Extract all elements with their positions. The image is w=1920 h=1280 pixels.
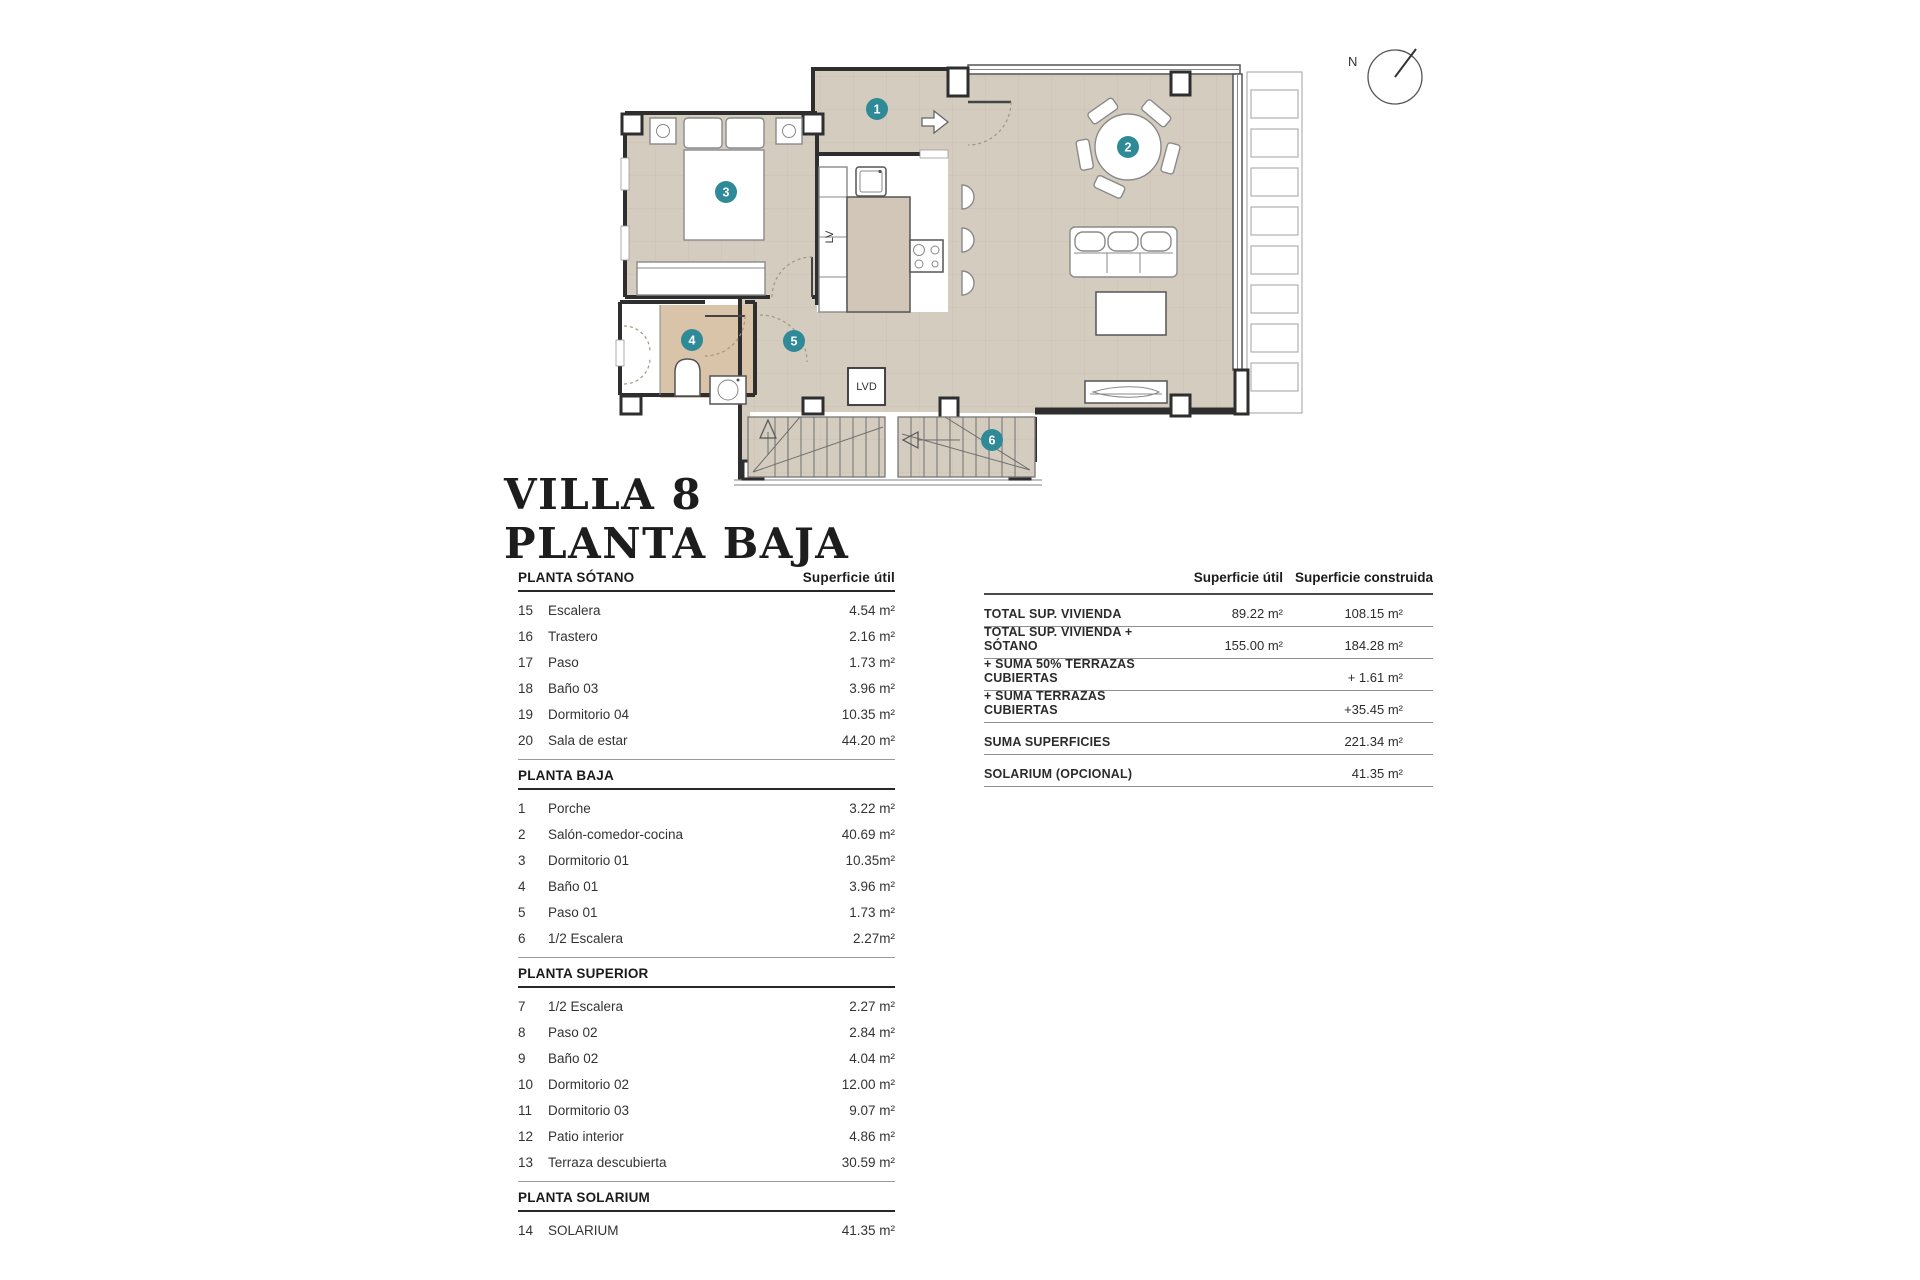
summary-row: + SUMA TERRAZAS CUBIERTAS+35.45 m² bbox=[984, 691, 1433, 723]
room-marker-number: 3 bbox=[723, 186, 730, 200]
floor-plan-area: LV LVD bbox=[490, 10, 1480, 495]
room-name: 1/2 Escalera bbox=[548, 931, 853, 946]
window bbox=[616, 340, 624, 366]
room-number: 12 bbox=[518, 1129, 548, 1144]
summary-label: TOTAL SUP. VIVIENDA + SÓTANO bbox=[984, 625, 1178, 653]
room-row: 71/2 Escalera2.27 m² bbox=[518, 993, 895, 1019]
kitchen-island bbox=[847, 197, 910, 312]
room-marker-number: 6 bbox=[989, 434, 996, 448]
room-number: 16 bbox=[518, 629, 548, 644]
room-marker-number: 5 bbox=[791, 335, 798, 349]
section-heading: PLANTA BAJA bbox=[518, 768, 614, 783]
room-area: 40.69 m² bbox=[842, 827, 895, 842]
room-marker-number: 4 bbox=[689, 334, 696, 348]
room-number: 2 bbox=[518, 827, 548, 842]
summary-label: TOTAL SUP. VIVIENDA bbox=[984, 607, 1178, 621]
room-name: Paso 01 bbox=[548, 905, 849, 920]
summary-construida-value: + 1.61 m² bbox=[1283, 670, 1433, 685]
summary-table-header: Superficie útil Superficie construida bbox=[984, 570, 1433, 595]
room-row: 2Salón-comedor-cocina40.69 m² bbox=[518, 821, 895, 847]
room-row: 13Terraza descubierta30.59 m² bbox=[518, 1149, 895, 1175]
room-area: 2.16 m² bbox=[849, 629, 895, 644]
pillow bbox=[726, 118, 764, 148]
pergola bbox=[1247, 72, 1302, 413]
summary-col2-header: Superficie construida bbox=[1283, 570, 1433, 585]
room-area: 4.04 m² bbox=[849, 1051, 895, 1066]
summary-util-value: 155.00 m² bbox=[1178, 638, 1283, 653]
room-marker-number: 1 bbox=[874, 103, 881, 117]
room-area: 3.22 m² bbox=[849, 801, 895, 816]
room-row: 15Escalera4.54 m² bbox=[518, 597, 895, 623]
room-row: 12Patio interior4.86 m² bbox=[518, 1123, 895, 1149]
summary-row: SOLARIUM (OPCIONAL)41.35 m² bbox=[984, 755, 1433, 787]
room-number: 1 bbox=[518, 801, 548, 816]
section-header-row: PLANTA SÓTANOSuperficie útil bbox=[518, 570, 895, 592]
room-number: 13 bbox=[518, 1155, 548, 1170]
room-number: 19 bbox=[518, 707, 548, 722]
rooms-table-body: PLANTA SÓTANOSuperficie útil15Escalera4.… bbox=[518, 570, 895, 1249]
room-name: 1/2 Escalera bbox=[548, 999, 849, 1014]
plan-section: PLANTA BAJA1Porche3.22 m²2Salón-comedor-… bbox=[518, 759, 895, 957]
room-name: Dormitorio 03 bbox=[548, 1103, 849, 1118]
summary-construida-value: +35.45 m² bbox=[1283, 702, 1433, 717]
summary-util-value: 89.22 m² bbox=[1178, 606, 1283, 621]
page-title: VILLA 8 PLANTA BAJA bbox=[504, 470, 849, 568]
room-area: 2.27m² bbox=[853, 931, 895, 946]
summary-row: TOTAL SUP. VIVIENDA89.22 m²108.15 m² bbox=[984, 595, 1433, 627]
room-number: 4 bbox=[518, 879, 548, 894]
room-area: 3.96 m² bbox=[849, 879, 895, 894]
room-number: 5 bbox=[518, 905, 548, 920]
section-header-row: PLANTA SOLARIUM bbox=[518, 1182, 895, 1212]
plan-section: PLANTA SÓTANOSuperficie útil15Escalera4.… bbox=[518, 570, 895, 759]
section-heading: PLANTA SUPERIOR bbox=[518, 966, 649, 981]
nightstand bbox=[776, 118, 802, 144]
room-row: 14SOLARIUM41.35 m² bbox=[518, 1217, 895, 1243]
summary-construida-value: 184.28 m² bbox=[1283, 638, 1433, 653]
coffee-table bbox=[1096, 292, 1166, 335]
room-row: 5Paso 011.73 m² bbox=[518, 899, 895, 925]
room-name: Baño 01 bbox=[548, 879, 849, 894]
section-header-row: PLANTA BAJA bbox=[518, 760, 895, 790]
room-area: 10.35m² bbox=[845, 853, 895, 868]
room-row: 16Trastero2.16 m² bbox=[518, 623, 895, 649]
wardrobe bbox=[637, 262, 765, 295]
room-marker-number: 2 bbox=[1125, 141, 1132, 155]
room-number: 9 bbox=[518, 1051, 548, 1066]
pillow bbox=[684, 118, 722, 148]
room-area: 9.07 m² bbox=[849, 1103, 895, 1118]
tv-console bbox=[1085, 381, 1167, 403]
summary-label: + SUMA 50% TERRAZAS CUBIERTAS bbox=[984, 657, 1178, 685]
section-rows: 71/2 Escalera2.27 m²8Paso 022.84 m²9Baño… bbox=[518, 988, 895, 1181]
room-name: Salón-comedor-cocina bbox=[548, 827, 842, 842]
room-area: 12.00 m² bbox=[842, 1077, 895, 1092]
room-row: 19Dormitorio 0410.35 m² bbox=[518, 701, 895, 727]
compass-needle bbox=[1395, 49, 1416, 77]
room-number: 14 bbox=[518, 1223, 548, 1238]
summary-col1-header: Superficie útil bbox=[1178, 570, 1283, 585]
room-number: 3 bbox=[518, 853, 548, 868]
room-number: 15 bbox=[518, 603, 548, 618]
room-name: Porche bbox=[548, 801, 849, 816]
room-number: 8 bbox=[518, 1025, 548, 1040]
dishwasher-label: LV bbox=[824, 230, 836, 243]
room-row: 18Baño 033.96 m² bbox=[518, 675, 895, 701]
room-number: 7 bbox=[518, 999, 548, 1014]
section-heading: PLANTA SOLARIUM bbox=[518, 1190, 650, 1205]
summary-table-body: TOTAL SUP. VIVIENDA89.22 m²108.15 m²TOTA… bbox=[984, 595, 1433, 787]
toilet bbox=[675, 359, 700, 396]
rooms-table: PLANTA SÓTANOSuperficie útil15Escalera4.… bbox=[518, 570, 895, 1249]
compass-north-label: N bbox=[1348, 54, 1357, 69]
room-number: 11 bbox=[518, 1103, 548, 1118]
room-area: 4.86 m² bbox=[849, 1129, 895, 1144]
room-name: Terraza descubierta bbox=[548, 1155, 842, 1170]
nightstand bbox=[650, 118, 676, 144]
room-name: Dormitorio 04 bbox=[548, 707, 842, 722]
room-area: 41.35 m² bbox=[842, 1223, 895, 1238]
room-name: Dormitorio 02 bbox=[548, 1077, 842, 1092]
room-row: 11Dormitorio 039.07 m² bbox=[518, 1097, 895, 1123]
summary-construida-value: 108.15 m² bbox=[1283, 606, 1433, 621]
floor-plan: LV LVD bbox=[490, 10, 1480, 495]
column-header: Superficie útil bbox=[803, 570, 895, 585]
plan-section: PLANTA SOLARIUM14SOLARIUM41.35 m² bbox=[518, 1181, 895, 1249]
section-rows: 1Porche3.22 m²2Salón-comedor-cocina40.69… bbox=[518, 790, 895, 957]
room-name: Paso 02 bbox=[548, 1025, 849, 1040]
window bbox=[621, 226, 629, 260]
room-name: Trastero bbox=[548, 629, 849, 644]
shower-floor bbox=[622, 305, 660, 398]
room-area: 30.59 m² bbox=[842, 1155, 895, 1170]
room-row: 3Dormitorio 0110.35m² bbox=[518, 847, 895, 873]
section-rows: 14SOLARIUM41.35 m² bbox=[518, 1212, 895, 1249]
room-row: 20Sala de estar44.20 m² bbox=[518, 727, 895, 753]
summary-table: Superficie útil Superficie construida TO… bbox=[984, 570, 1433, 787]
title-line-2: PLANTA BAJA bbox=[504, 519, 849, 568]
room-name: Paso bbox=[548, 655, 849, 670]
room-number: 18 bbox=[518, 681, 548, 696]
stove bbox=[910, 240, 943, 272]
room-name: Escalera bbox=[548, 603, 849, 618]
room-name: SOLARIUM bbox=[548, 1223, 842, 1238]
room-row: 4Baño 013.96 m² bbox=[518, 873, 895, 899]
room-name: Dormitorio 01 bbox=[548, 853, 845, 868]
room-name: Baño 03 bbox=[548, 681, 849, 696]
room-row: 8Paso 022.84 m² bbox=[518, 1019, 895, 1045]
room-area: 4.54 m² bbox=[849, 603, 895, 618]
summary-row: SUMA SUPERFICIES221.34 m² bbox=[984, 723, 1433, 755]
window bbox=[621, 158, 629, 190]
compass: N bbox=[1348, 49, 1422, 104]
title-line-1: VILLA 8 bbox=[504, 470, 849, 519]
section-rows: 15Escalera4.54 m²16Trastero2.16 m²17Paso… bbox=[518, 592, 895, 759]
room-area: 44.20 m² bbox=[842, 733, 895, 748]
room-row: 10Dormitorio 0212.00 m² bbox=[518, 1071, 895, 1097]
room-name: Baño 02 bbox=[548, 1051, 849, 1066]
room-area: 2.27 m² bbox=[849, 999, 895, 1014]
room-area: 2.84 m² bbox=[849, 1025, 895, 1040]
room-area: 1.73 m² bbox=[849, 905, 895, 920]
room-row: 1Porche3.22 m² bbox=[518, 795, 895, 821]
summary-label: SUMA SUPERFICIES bbox=[984, 735, 1178, 749]
room-number: 17 bbox=[518, 655, 548, 670]
summary-construida-value: 41.35 m² bbox=[1283, 766, 1433, 781]
room-number: 20 bbox=[518, 733, 548, 748]
summary-label: SOLARIUM (OPCIONAL) bbox=[984, 767, 1178, 781]
room-name: Sala de estar bbox=[548, 733, 842, 748]
section-header-row: PLANTA SUPERIOR bbox=[518, 958, 895, 988]
room-row: 61/2 Escalera2.27m² bbox=[518, 925, 895, 951]
room-area: 10.35 m² bbox=[842, 707, 895, 722]
summary-construida-value: 221.34 m² bbox=[1283, 734, 1433, 749]
laundry: LVD bbox=[848, 368, 885, 405]
window bbox=[920, 150, 948, 158]
room-name: Patio interior bbox=[548, 1129, 849, 1144]
stair-flight-down bbox=[748, 417, 885, 477]
washer-label: LVD bbox=[856, 381, 877, 393]
summary-row: TOTAL SUP. VIVIENDA + SÓTANO155.00 m²184… bbox=[984, 627, 1433, 659]
room-area: 1.73 m² bbox=[849, 655, 895, 670]
room-number: 10 bbox=[518, 1077, 548, 1092]
summary-label: + SUMA TERRAZAS CUBIERTAS bbox=[984, 689, 1178, 717]
room-area: 3.96 m² bbox=[849, 681, 895, 696]
summary-row: + SUMA 50% TERRAZAS CUBIERTAS+ 1.61 m² bbox=[984, 659, 1433, 691]
room-row: 9Baño 024.04 m² bbox=[518, 1045, 895, 1071]
section-heading: PLANTA SÓTANO bbox=[518, 570, 634, 585]
plan-section: PLANTA SUPERIOR71/2 Escalera2.27 m²8Paso… bbox=[518, 957, 895, 1181]
room-row: 17Paso1.73 m² bbox=[518, 649, 895, 675]
room-number: 6 bbox=[518, 931, 548, 946]
